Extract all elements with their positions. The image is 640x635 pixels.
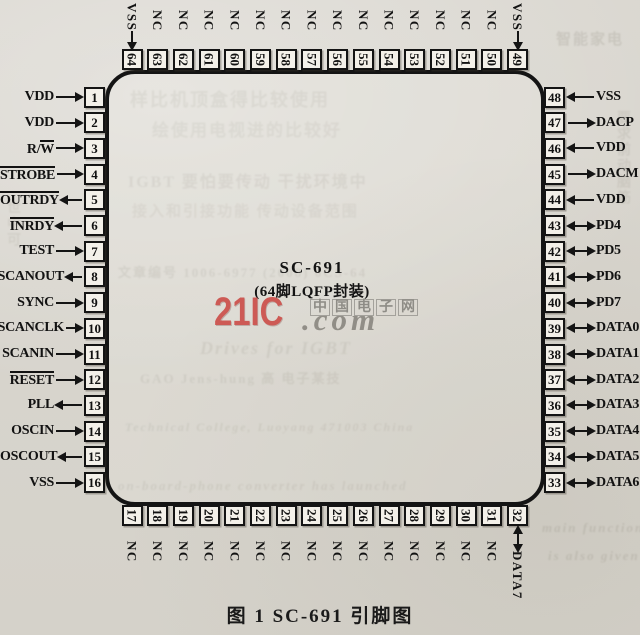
pin-number: 63 — [151, 53, 164, 66]
pin-column: NC — [250, 0, 272, 49]
pin-number: 2 — [91, 116, 98, 129]
pin-row: SCANOUT — [0, 265, 84, 289]
pin-number: 40 — [548, 296, 561, 309]
pin-label: NC — [305, 541, 318, 563]
pin-box: 53 — [404, 49, 425, 70]
pin-label: NC — [280, 541, 293, 563]
bleedthrough-text: main functions — [542, 520, 640, 536]
pin-number: 15 — [88, 450, 101, 463]
chip-name: SC-691 — [196, 258, 428, 278]
pin-box: 33 — [544, 472, 565, 493]
pin-number: 48 — [548, 91, 561, 104]
pin-row: SCANCLK — [0, 316, 84, 340]
pin-box: 16 — [84, 472, 105, 493]
pin-column: NC — [352, 0, 374, 49]
pin-label: NC — [331, 541, 344, 563]
pin-number: 61 — [203, 53, 216, 66]
pin-box: 27 — [379, 505, 400, 526]
bleedthrough-text: 智能家电 — [556, 28, 624, 49]
pin-column: NC — [455, 0, 477, 49]
pin-number: 11 — [88, 348, 100, 361]
pin-label: VSS — [511, 3, 524, 31]
pin-number: 22 — [254, 509, 267, 522]
pin-label: NC — [254, 10, 267, 32]
pin-row: OUTRDY — [0, 188, 84, 212]
pin-arrow-icon — [517, 527, 519, 551]
pin-row: DACP — [566, 111, 640, 135]
pin-arrow-icon — [66, 327, 82, 329]
pin-arrow-icon — [568, 456, 594, 458]
pin-number: 33 — [548, 476, 561, 489]
pin-number: 59 — [254, 53, 267, 66]
pin-arrow-icon — [66, 276, 82, 278]
pin-box: 21 — [224, 505, 245, 526]
pin-column: NC — [198, 0, 220, 49]
pin-label: DATA0 — [596, 321, 639, 335]
pin-box: 2 — [84, 112, 105, 133]
pin-box: 51 — [456, 49, 477, 70]
pin-column: NC — [378, 0, 400, 49]
pin-label: SCANCLK — [0, 321, 64, 335]
pin-label: NC — [408, 10, 421, 32]
pin-label: NC — [383, 541, 396, 563]
pin-arrow-icon — [568, 430, 594, 432]
pin-column: NC — [481, 0, 503, 49]
pin-box: 8 — [84, 266, 105, 287]
pin-box: 55 — [353, 49, 374, 70]
pin-label: R/W — [27, 140, 54, 157]
pin-number: 18 — [151, 509, 164, 522]
pin-row: DATA3 — [566, 393, 640, 417]
pin-label: VDD — [25, 90, 54, 104]
pin-arrow-icon — [568, 173, 594, 175]
pin-column: NC — [224, 0, 246, 49]
pin-label: NC — [228, 10, 241, 32]
pin-row: VSS — [0, 471, 84, 495]
pin-arrow-icon — [568, 96, 594, 98]
pin-number: 6 — [91, 219, 98, 232]
pin-box: 24 — [301, 505, 322, 526]
pin-label: DATA3 — [596, 398, 639, 412]
pin-number: 31 — [485, 509, 498, 522]
pin-arrow-icon — [56, 250, 82, 252]
pin-number: 44 — [548, 193, 561, 206]
pin-box: 30 — [456, 505, 477, 526]
pin-number: 42 — [548, 245, 561, 258]
chip-title-block: SC-691 (64脚LQFP封装) — [196, 258, 428, 301]
pin-box: 26 — [353, 505, 374, 526]
pin-arrow-icon — [61, 199, 82, 201]
pin-label: NC — [228, 541, 241, 563]
pin-box: 25 — [327, 505, 348, 526]
pin-label: NC — [434, 541, 447, 563]
pin-arrow-icon — [59, 456, 82, 458]
pin-label: SCANIN — [2, 347, 54, 361]
pin-number: 56 — [331, 53, 344, 66]
pin-number: 4 — [91, 168, 98, 181]
pin-box: 9 — [84, 292, 105, 313]
pin-number: 29 — [434, 509, 447, 522]
pin-number: 20 — [203, 509, 216, 522]
pin-row: VDD — [0, 111, 84, 135]
pin-arrow-icon — [56, 225, 82, 227]
pin-row: VDD — [566, 136, 640, 160]
pin-column: VSS — [121, 0, 143, 49]
pin-row: PD4 — [566, 214, 640, 238]
pin-row: PD7 — [566, 291, 640, 315]
pin-number: 8 — [91, 270, 98, 283]
pin-number: 25 — [331, 509, 344, 522]
pin-number: 49 — [511, 53, 524, 66]
pin-box: 60 — [224, 49, 245, 70]
pin-box: 52 — [430, 49, 451, 70]
pin-box: 47 — [544, 112, 565, 133]
pin-label: RESET — [10, 371, 54, 388]
pin-row: TEST — [0, 239, 84, 263]
pin-number: 5 — [91, 193, 98, 206]
pin-box: 50 — [481, 49, 502, 70]
pin-label: PD6 — [596, 270, 621, 284]
pin-arrow-icon — [56, 430, 82, 432]
pin-box: 13 — [84, 395, 105, 416]
pin-number: 60 — [228, 53, 241, 66]
pin-arrow-icon — [568, 250, 594, 252]
pin-label: DATA7 — [511, 551, 524, 600]
pin-number: 1 — [91, 91, 98, 104]
pin-number: 64 — [126, 53, 139, 66]
pin-arrow-icon — [57, 173, 82, 175]
pin-arrow-icon — [56, 147, 82, 149]
pin-label: DATA2 — [596, 373, 639, 387]
pin-label: DATA1 — [596, 347, 639, 361]
pin-number: 23 — [280, 509, 293, 522]
pin-box: 48 — [544, 87, 565, 108]
pin-box: 46 — [544, 138, 565, 159]
pin-label: PD4 — [596, 219, 621, 233]
pin-number: 53 — [408, 53, 421, 66]
pin-box: 28 — [404, 505, 425, 526]
pin-label: NC — [331, 10, 344, 32]
pin-label: TEST — [19, 244, 54, 258]
pin-arrow-icon — [568, 276, 594, 278]
pin-row: RESET — [0, 368, 84, 392]
pin-arrow-icon — [517, 31, 519, 49]
bleedthrough-text: is also given — [548, 548, 640, 564]
pin-row: PD6 — [566, 265, 640, 289]
pin-arrow-icon — [568, 482, 594, 484]
pin-column: NC — [147, 0, 169, 49]
pin-number: 38 — [548, 348, 561, 361]
pin-label: NC — [460, 541, 473, 563]
pin-box: 40 — [544, 292, 565, 313]
pin-label: DATA6 — [596, 476, 639, 490]
pin-number: 7 — [91, 245, 98, 258]
pin-box: 3 — [84, 138, 105, 159]
pin-row: R/W — [0, 136, 84, 160]
pin-row: DATA6 — [566, 471, 640, 495]
pin-row: DACM — [566, 162, 640, 186]
pin-arrow-icon — [568, 404, 594, 406]
pin-number: 41 — [548, 270, 561, 283]
pin-arrow-icon — [56, 404, 82, 406]
pin-number: 55 — [357, 53, 370, 66]
pin-row: OSCIN — [0, 419, 84, 443]
pin-box: 17 — [122, 505, 143, 526]
pin-label: NC — [177, 10, 190, 32]
pin-label: DACM — [596, 167, 638, 181]
pin-arrow-icon — [131, 31, 133, 49]
pin-column: VSS — [507, 0, 529, 49]
pin-number: 10 — [88, 322, 101, 335]
pin-box: 59 — [250, 49, 271, 70]
pin-box: 34 — [544, 446, 565, 467]
pin-box: 22 — [250, 505, 271, 526]
pin-label: NC — [151, 541, 164, 563]
pin-arrow-icon — [56, 96, 82, 98]
pin-label: INRDY — [10, 217, 54, 234]
pin-column: NC — [275, 0, 297, 49]
pin-box: 58 — [276, 49, 297, 70]
pin-number: 9 — [91, 296, 98, 309]
pin-number: 52 — [434, 53, 447, 66]
pin-arrow-icon — [568, 379, 594, 381]
pin-label: OSCOUT — [0, 450, 57, 464]
pin-box: 37 — [544, 369, 565, 390]
pin-arrow-icon — [568, 353, 594, 355]
pin-number: 57 — [305, 53, 318, 66]
pin-box: 15 — [84, 446, 105, 467]
pin-row: SCANIN — [0, 342, 84, 366]
pin-number: 24 — [305, 509, 318, 522]
pin-number: 16 — [88, 476, 101, 489]
pin-label: NC — [177, 541, 190, 563]
pin-number: 28 — [408, 509, 421, 522]
pin-box: 63 — [147, 49, 168, 70]
pin-arrow-icon — [568, 199, 594, 201]
pin-label: OUTRDY — [0, 191, 59, 208]
pin-box: 31 — [481, 505, 502, 526]
pin-label: DACP — [596, 116, 634, 130]
pin-number: 14 — [88, 425, 101, 438]
pin-arrow-icon — [568, 225, 594, 227]
pin-label: NC — [485, 541, 498, 563]
pin-label: VDD — [596, 141, 625, 155]
pin-arrow-icon — [56, 122, 82, 124]
scanned-page: 样比机顶盒得比较使用绘使用电视进的比较好IGBT 要怕要传动 干扰环境中接入和引… — [0, 0, 640, 635]
pin-label: NC — [203, 10, 216, 32]
pin-number: 37 — [548, 373, 561, 386]
pin-label: NC — [305, 10, 318, 32]
pin-box: 36 — [544, 395, 565, 416]
pin-arrow-icon — [568, 302, 594, 304]
pin-label: NC — [254, 541, 267, 563]
pin-arrow-icon — [568, 122, 594, 124]
pin-box: 4 — [84, 164, 105, 185]
pin-box: 35 — [544, 421, 565, 442]
pin-box: 12 — [84, 369, 105, 390]
pin-box: 64 — [122, 49, 143, 70]
pin-box: 41 — [544, 266, 565, 287]
pin-box: 19 — [173, 505, 194, 526]
pin-row: INRDY — [0, 214, 84, 238]
pin-box: 54 — [379, 49, 400, 70]
pin-number: 17 — [126, 509, 139, 522]
pin-label: NC — [126, 541, 139, 563]
pin-label: NC — [434, 10, 447, 32]
pin-label: PD7 — [596, 296, 621, 310]
figure-caption: 图 1 SC-691 引脚图 — [0, 601, 640, 628]
pin-number: 26 — [357, 509, 370, 522]
pin-row: VSS — [566, 85, 640, 109]
pin-label: VDD — [596, 193, 625, 207]
pin-number: 39 — [548, 322, 561, 335]
pin-row: DATA1 — [566, 342, 640, 366]
pin-box: 7 — [84, 241, 105, 262]
pin-box: 20 — [199, 505, 220, 526]
pin-row: DATA0 — [566, 316, 640, 340]
pin-column: NC — [327, 0, 349, 49]
pin-box: 39 — [544, 318, 565, 339]
pin-number: 32 — [511, 509, 524, 522]
pin-number: 13 — [88, 399, 101, 412]
pin-label: PLL — [28, 398, 54, 412]
pin-number: 45 — [548, 168, 561, 181]
pin-box: 29 — [430, 505, 451, 526]
pin-column: NC — [172, 0, 194, 49]
pin-label: VSS — [596, 90, 621, 104]
pin-box: 1 — [84, 87, 105, 108]
pin-number: 43 — [548, 219, 561, 232]
pin-label: VDD — [25, 116, 54, 130]
pin-box: 6 — [84, 215, 105, 236]
pin-number: 47 — [548, 116, 561, 129]
pin-box: 14 — [84, 421, 105, 442]
pin-label: VSS — [126, 3, 139, 31]
pin-label: NC — [280, 10, 293, 32]
pin-arrow-icon — [56, 302, 82, 304]
pin-box: 18 — [147, 505, 168, 526]
pin-number: 54 — [383, 53, 396, 66]
pin-number: 30 — [460, 509, 473, 522]
pin-row: PD5 — [566, 239, 640, 263]
pin-arrow-icon — [568, 327, 594, 329]
pin-column: NC — [301, 0, 323, 49]
pin-box: 44 — [544, 189, 565, 210]
pin-box: 10 — [84, 318, 105, 339]
pin-box: 62 — [173, 49, 194, 70]
pin-box: 56 — [327, 49, 348, 70]
pin-number: 46 — [548, 142, 561, 155]
chip-package: (64脚LQFP封装) — [196, 280, 428, 301]
pin-label: OSCIN — [11, 424, 54, 438]
pin-box: 49 — [507, 49, 528, 70]
pin-number: 27 — [383, 509, 396, 522]
pin-label: PD5 — [596, 244, 621, 258]
pin-label: NC — [383, 10, 396, 32]
pin-row: DATA5 — [566, 445, 640, 469]
pin-box: 11 — [84, 344, 105, 365]
pin-box: 57 — [301, 49, 322, 70]
pin-box: 43 — [544, 215, 565, 236]
pin-arrow-icon — [56, 379, 82, 381]
pin-label: STROBE — [0, 166, 55, 183]
pin-box: 23 — [276, 505, 297, 526]
pin-arrow-icon — [568, 147, 594, 149]
pin-box: 32 — [507, 505, 528, 526]
pin-column: NC — [404, 0, 426, 49]
pin-box: 61 — [199, 49, 220, 70]
pin-row: OSCOUT — [0, 445, 84, 469]
pin-label: NC — [151, 10, 164, 32]
pin-label: SCANOUT — [0, 270, 64, 284]
pin-box: 38 — [544, 344, 565, 365]
pin-label: NC — [357, 541, 370, 563]
pin-number: 36 — [548, 399, 561, 412]
pin-number: 3 — [91, 142, 98, 155]
pin-label: NC — [460, 10, 473, 32]
pin-number: 34 — [548, 450, 561, 463]
pin-row: VDD — [566, 188, 640, 212]
pin-box: 42 — [544, 241, 565, 262]
pin-number: 58 — [280, 53, 293, 66]
pin-box: 5 — [84, 189, 105, 210]
pin-number: 19 — [177, 509, 190, 522]
pin-column: NC — [429, 0, 451, 49]
pin-box: 45 — [544, 164, 565, 185]
pin-row: DATA4 — [566, 419, 640, 443]
pin-label: DATA4 — [596, 424, 639, 438]
pin-row: STROBE — [0, 162, 84, 186]
pin-number: 12 — [88, 373, 101, 386]
pin-number: 62 — [177, 53, 190, 66]
pin-arrow-icon — [56, 482, 82, 484]
pin-number: 35 — [548, 425, 561, 438]
pin-label: NC — [485, 10, 498, 32]
pin-label: VSS — [29, 476, 54, 490]
pin-row: SYNC — [0, 291, 84, 315]
pin-row: DATA2 — [566, 368, 640, 392]
pin-row: VDD — [0, 85, 84, 109]
pin-row: PLL — [0, 393, 84, 417]
pin-arrow-icon — [56, 353, 82, 355]
pin-label: SYNC — [17, 296, 54, 310]
pin-number: 50 — [485, 53, 498, 66]
pin-number: 51 — [460, 53, 473, 66]
pin-number: 21 — [228, 509, 241, 522]
pin-label: DATA5 — [596, 450, 639, 464]
pin-label: NC — [408, 541, 421, 563]
pin-label: NC — [357, 10, 370, 32]
pin-label: NC — [203, 541, 216, 563]
